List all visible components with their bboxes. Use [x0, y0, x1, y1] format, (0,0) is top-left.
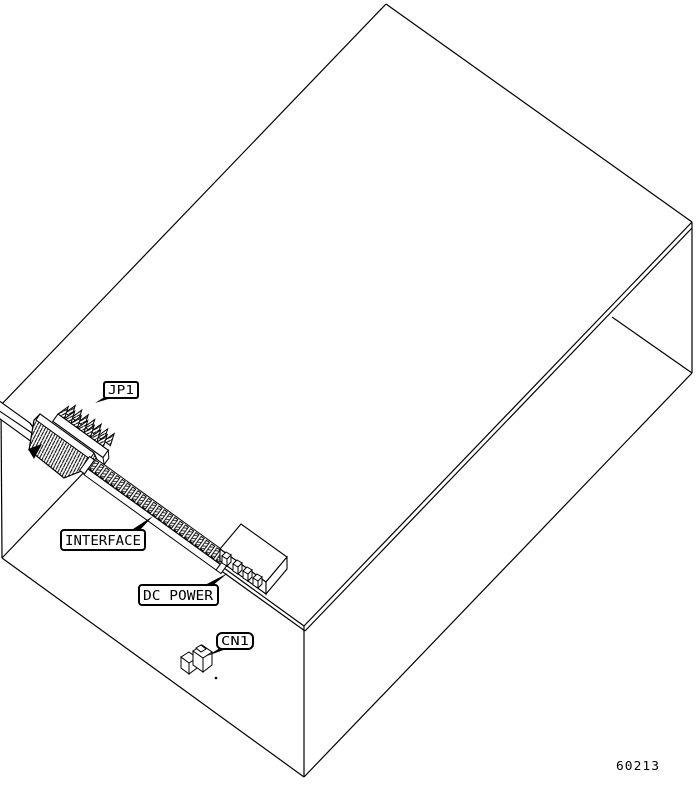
callout-jp1: JP1 [95, 382, 138, 403]
callout-interface-label: INTERFACE [65, 534, 141, 549]
callout-cn1-label: CN1 [221, 634, 249, 648]
figure-number: 60213 [616, 758, 660, 773]
cn1-connector [181, 645, 217, 679]
interface-connector [79, 455, 233, 574]
dc-power-pin [243, 567, 252, 581]
dc-power-pin [222, 552, 231, 566]
diagram-canvas: JP1 INTERFACE DC POWER CN1 60213 [0, 0, 699, 785]
callout-jp1-label: JP1 [108, 383, 134, 397]
box-bottom-right-edge [304, 373, 692, 777]
rim-right-outer-line [304, 222, 692, 626]
box-left-vertical-edge [1, 406, 2, 558]
rim-inner-lip-line [612, 317, 692, 373]
dc-power-connector [220, 524, 287, 594]
callout-interface: INTERFACE [61, 516, 153, 550]
cn1-dot [215, 677, 218, 680]
box-top-left-edge [0, 4, 386, 406]
dc-power-pin [253, 574, 262, 588]
callout-interface-pointer [130, 516, 153, 531]
callout-dc-power-label: DC POWER [143, 589, 213, 604]
callout-cn1: CN1 [207, 633, 253, 656]
interface-face [84, 469, 220, 570]
rim-right-inner-line [305, 228, 692, 631]
chassis-diagram: JP1 INTERFACE DC POWER CN1 60213 [0, 0, 699, 785]
dc-power-pin [233, 560, 242, 574]
box-top-right-edge [386, 4, 692, 222]
callout-dc-power: DC POWER [139, 573, 228, 605]
